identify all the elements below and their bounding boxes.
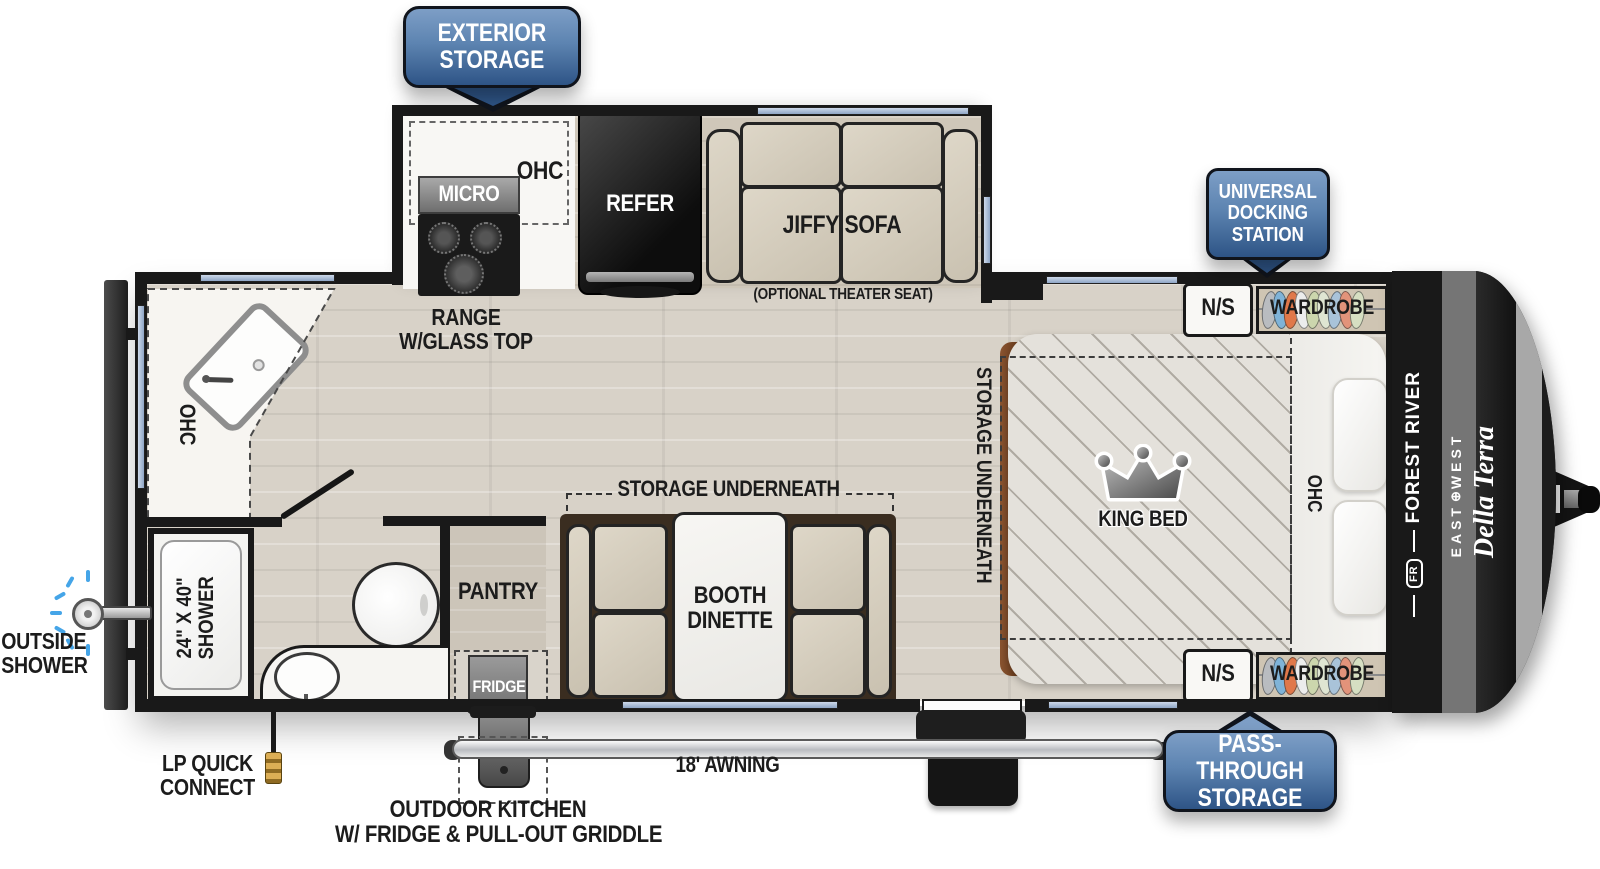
brand-flourish-left [1413,595,1415,617]
brand-forest-river-text: FOREST RIVER [1404,371,1424,523]
slideout-wall-left [392,105,403,285]
exterior-storage-callout: EXTERIOR STORAGE [403,6,581,88]
bath-wall-left [146,517,282,527]
bath-wall-right [383,516,546,526]
dinette-bench-right-seat-bottom [790,612,866,698]
micro-label: MICRO [426,183,513,206]
spray-dash-1 [50,611,62,615]
docking-line3: STATION [1219,225,1317,247]
hitch-coupler [1578,486,1600,513]
lp-pipe [271,710,276,758]
dinette-storage-bracket-right [846,493,894,511]
range-label-line2: W/GLASS TOP [381,330,551,354]
brand-east-text: EAST [1449,504,1464,557]
brand-east-west: EAST ⊕ WEST [1446,390,1466,600]
crown-icon [1094,444,1192,510]
lp-label: LP QUICK CONNECT [137,752,277,800]
burner-center-icon [444,254,484,294]
sofa-note-label: (OPTIONAL THEATER SEAT) [741,287,945,304]
dinette-bench-right-seat-top [790,524,866,612]
toilet-flush [420,594,428,616]
outside-shower-label: OUTSIDE SHOWER [1,630,83,678]
window-slideout-side [983,196,991,264]
awning-rail [452,739,1164,759]
docking-line1: UNIVERSAL [1219,182,1317,204]
outdoor-kitchen-line2: W/ FRIDGE & PULL-OUT GRIDDLE [335,823,641,848]
window-top-bedroom [1046,276,1178,284]
universal-docking-callout: UNIVERSAL DOCKING STATION [1206,168,1330,260]
outdoor-kitchen-line1: OUTDOOR KITCHEN [335,798,641,823]
window-bottom-dinette [622,701,838,709]
window-top-rear [200,274,335,282]
dinette-label-line2: DINETTE [679,609,781,634]
pass-through-line1: PASS-THROUGH [1179,731,1322,785]
dinette-storage-bracket-left [566,493,612,511]
outside-shower-head-dot [84,610,92,618]
refer-label: REFER [587,192,692,217]
exterior-storage-line1: EXTERIOR [438,20,547,47]
floorplan-canvas: OHC MICRO RANGE W/GLASS TOP REFER JIFFY … [0,0,1600,869]
outside-shower-line2: SHOWER [1,654,83,678]
lp-label-line2: CONNECT [137,776,277,800]
pillow-bottom [1332,500,1388,616]
dinette-label-line1: BOOTH [679,584,781,609]
outdoor-kitchen-label: OUTDOOR KITCHEN W/ FRIDGE & PULL-OUT GRI… [335,798,641,848]
refrigerator-handle [586,272,694,282]
nightstand-top-label: N/S [1188,296,1248,321]
lp-label-line1: LP QUICK [137,752,277,776]
rear-bumper [104,280,128,710]
sofa-back-right [840,122,944,188]
range-label: RANGE W/GLASS TOP [381,306,551,354]
exterior-storage-line2: STORAGE [438,47,547,74]
cap-band-light [1516,271,1542,713]
entry-step-lower [928,752,1018,806]
window-bottom-bedroom [1048,701,1178,709]
wall-top-jog [985,284,1043,300]
pass-through-callout: PASS-THROUGH STORAGE [1163,730,1337,812]
refrigerator-base [600,286,680,298]
bed-ohc-label: OHC [1302,468,1324,519]
shower-label-line1: 24" X 40" [174,546,196,690]
brand-forest-river: FR FOREST RIVER [1400,368,1428,620]
brand-flourish-right [1413,530,1415,552]
docking-line2: DOCKING [1219,203,1317,225]
fridge-label: FRIDGE [473,678,524,696]
wardrobe-bottom-label: WARDROBE [1266,663,1378,685]
forest-river-logo-icon: FR [1406,559,1423,588]
dinette-label: BOOTH DINETTE [679,584,781,634]
nightstand-bottom-label: N/S [1188,662,1248,687]
brand-west-text: WEST [1449,433,1464,489]
window-rear-side [137,305,145,489]
wardrobe-top-label: WARDROBE [1266,297,1378,319]
dinette-bench-left-back [566,524,592,698]
pass-through-line2: STORAGE [1179,785,1322,812]
spray-dash-4 [65,576,74,588]
brand-model: Della Terra [1470,376,1506,608]
window-slideout-top [757,107,969,115]
burner-right-icon [470,222,502,254]
awning-label: 18' AWNING [653,754,802,777]
range-label-line1: RANGE [381,306,551,330]
king-bed-label: KING BED [1092,508,1194,531]
bed-storage-label: STORAGE UNDERNEATH [968,352,994,599]
pantry-label: PANTRY [447,580,549,605]
compass-icon: ⊕ [1449,491,1463,502]
outside-shower-arm [100,606,152,620]
bumper-arm-bottom [126,648,138,660]
dinette-bench-left-seat-bottom [592,612,668,698]
spray-dash-6 [86,570,90,582]
spray-dash-2 [54,591,66,600]
sofa-armrest-right [942,129,978,283]
sofa-back-left [740,122,842,188]
cap-nose [1542,271,1556,713]
sofa-label: JIFFY SOFA [757,212,927,238]
shower-label-line2: SHOWER [196,546,218,690]
sofa-armrest-left [706,129,742,283]
shower-label: 24" X 40" SHOWER [174,546,222,690]
pillow-top [1332,378,1388,492]
outside-shower-line1: OUTSIDE [1,630,83,654]
dinette-storage-label: STORAGE UNDERNEATH [618,478,839,501]
bath-ohc-label: OHC [174,400,198,449]
dinette-bench-right-back [866,524,892,698]
griddle-lip [470,706,536,718]
bumper-arm-top [126,328,138,340]
burner-left-icon [428,222,460,254]
dinette-bench-left-seat-top [592,524,668,612]
